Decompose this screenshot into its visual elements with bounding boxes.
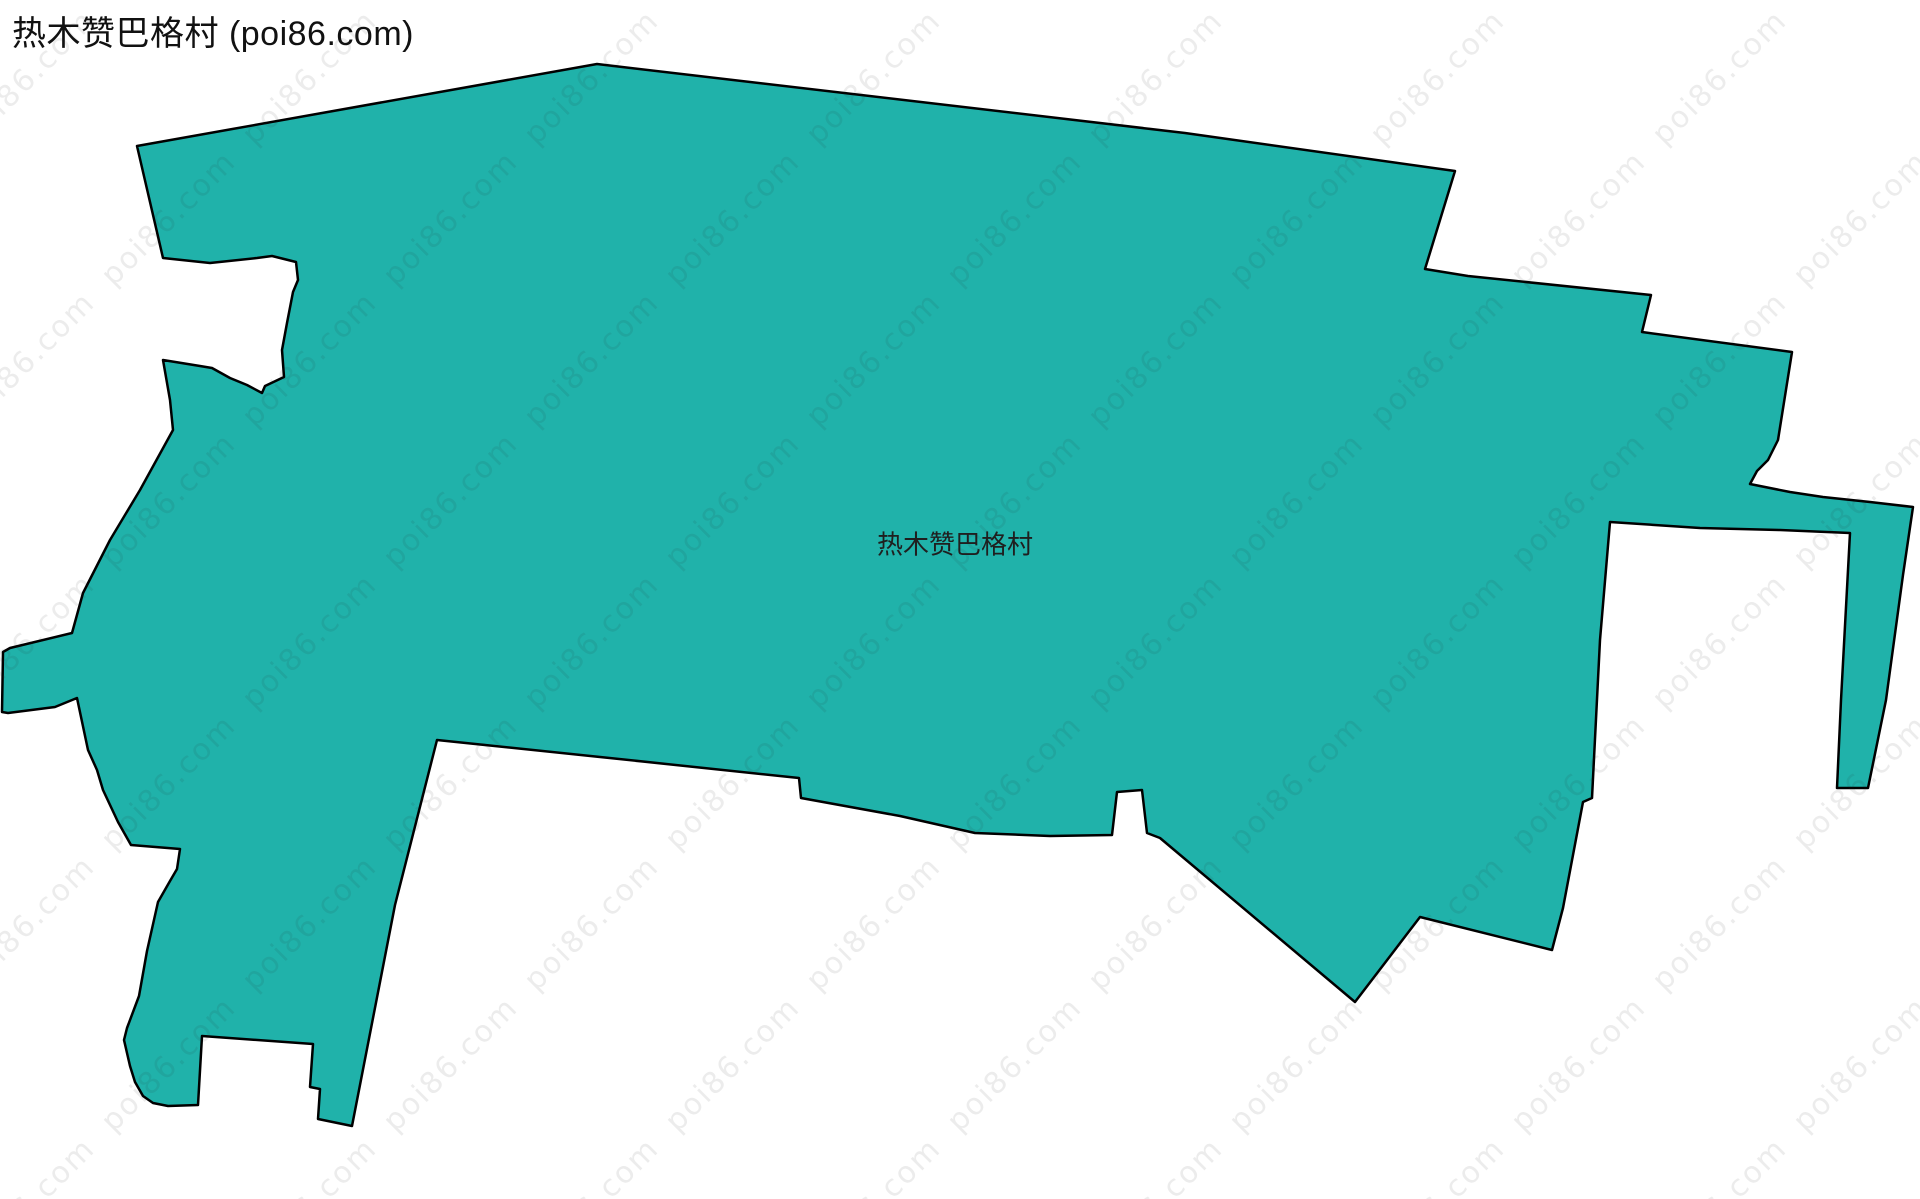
page-title: 热木赞巴格村 (poi86.com) — [12, 6, 414, 55]
map-page: poi86.compoi86.compoi86.compoi86.compoi8… — [0, 0, 1920, 1199]
region-label: 热木赞巴格村 — [877, 525, 1033, 562]
village-boundary-polygon — [2, 64, 1913, 1126]
map-canvas — [0, 0, 1920, 1199]
